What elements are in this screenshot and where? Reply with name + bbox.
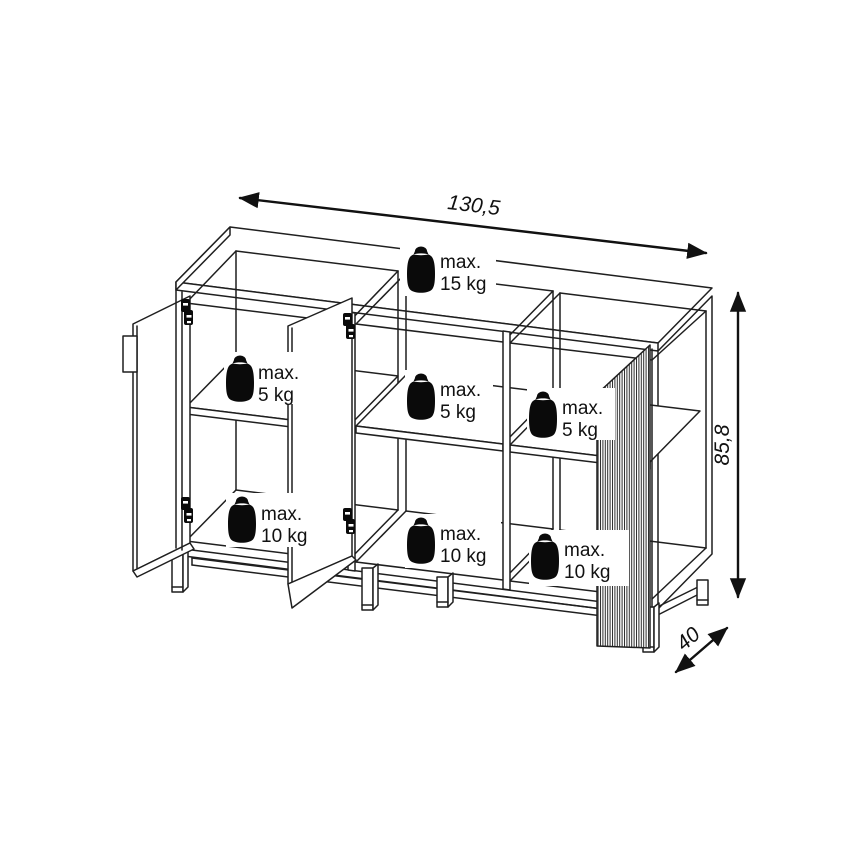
svg-text:10 kg: 10 kg: [440, 546, 486, 567]
leg-back-right: [697, 580, 708, 605]
left-door-open: [123, 296, 194, 577]
svg-text:max.: max.: [440, 380, 481, 401]
svg-text:15 kg: 15 kg: [440, 274, 486, 295]
svg-text:5 kg: 5 kg: [562, 420, 598, 441]
load-label-bottom-left: max. 10 kg: [226, 493, 322, 547]
load-label-top: max. 15 kg: [400, 242, 496, 296]
svg-text:max.: max.: [261, 504, 302, 525]
svg-text:max.: max.: [258, 363, 299, 384]
divider-right: [503, 331, 510, 590]
svg-text:10 kg: 10 kg: [564, 562, 610, 583]
load-label-shelf-middle: max. 5 kg: [405, 370, 493, 423]
dimension-depth: 40: [672, 623, 727, 672]
svg-text:5 kg: 5 kg: [440, 402, 476, 423]
svg-text:max.: max.: [562, 398, 603, 419]
dimension-height: 85,8: [711, 293, 738, 597]
cabinet-right-side-panel: [658, 296, 712, 609]
svg-text:85,8: 85,8: [711, 424, 734, 465]
leg-mid-left: [362, 564, 378, 610]
load-label-shelf-left: max. 5 kg: [224, 352, 312, 406]
svg-text:max.: max.: [440, 252, 481, 273]
load-label-bottom-middle: max. 10 kg: [405, 514, 501, 568]
svg-text:max.: max.: [564, 540, 605, 561]
load-label-bottom-right: max. 10 kg: [529, 530, 629, 586]
left-door-handle: [123, 336, 137, 372]
load-label-shelf-right: max. 5 kg: [527, 388, 615, 441]
svg-text:130,5: 130,5: [446, 191, 501, 220]
svg-text:max.: max.: [440, 524, 481, 545]
svg-text:5 kg: 5 kg: [258, 385, 294, 406]
leg-mid-right: [437, 573, 453, 607]
technical-drawing: max. 15 kg max. 5 kg max. 5 kg max. 5 kg…: [0, 0, 868, 868]
svg-text:10 kg: 10 kg: [261, 526, 307, 547]
middle-door-open: [288, 298, 356, 608]
